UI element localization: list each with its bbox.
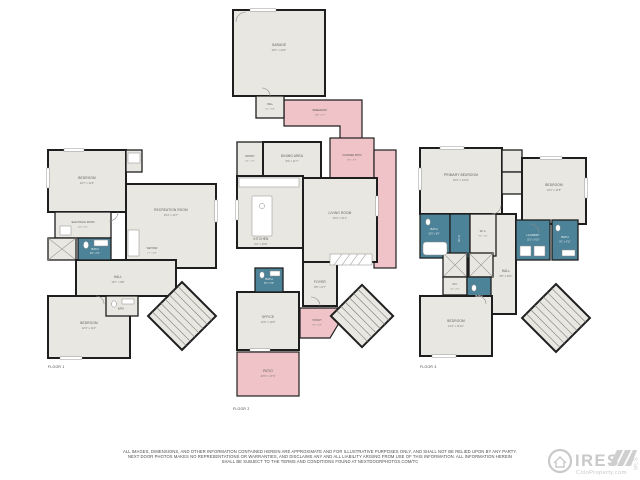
floor-3-label: FLOOR 3	[420, 365, 437, 369]
disclaimer-line-3: SHALL BE SUBJECT TO THE TERMS AND CONDIT…	[222, 459, 419, 464]
room-dims: 5'1" x 5'8"	[265, 109, 275, 111]
closet-top	[502, 172, 522, 194]
room-pantry	[237, 142, 263, 176]
room-dims: 16'8" x 5'7"	[315, 115, 326, 117]
room-dims: 8'9" x 6'7"	[314, 285, 326, 289]
room-label: OFFICE	[262, 315, 275, 319]
closet-top	[502, 150, 522, 172]
toilet-icon	[556, 225, 561, 231]
room-foyer	[303, 262, 337, 306]
room-wc	[443, 277, 467, 295]
bath-vanity	[270, 271, 280, 276]
room-label: BREEZEWAY	[313, 109, 328, 112]
room-label: BEDROOM	[78, 176, 96, 180]
house-icon	[554, 457, 566, 467]
electrical-box	[60, 226, 71, 235]
room-dims: 8'0" x 5'1"	[90, 253, 100, 255]
kitchen-counter	[239, 178, 299, 187]
wetbar-counter	[128, 230, 139, 256]
room-label: FOYER	[314, 280, 326, 284]
room-label: BATH	[91, 247, 98, 251]
room-dims: 14'2" x 11'10"	[448, 324, 464, 328]
room-dims: 11'4" x 6'1"	[78, 227, 89, 229]
stairs-floor3	[522, 284, 590, 352]
room-label: PANTRY	[245, 155, 255, 158]
room-label: BATH	[265, 277, 272, 281]
floor-1-label: FLOOR 1	[48, 365, 65, 369]
toilet-icon	[426, 219, 431, 225]
room-label: HALL	[502, 269, 511, 273]
covered-patio	[330, 138, 374, 178]
toilet-icon	[472, 285, 477, 291]
room-label: LAUNDRY	[526, 233, 539, 237]
room-label: W.I.C.	[457, 234, 461, 242]
window	[47, 168, 50, 188]
room-dims: 9'2" x 16'6"	[254, 242, 267, 246]
room-label: RECREATION ROOM	[154, 208, 188, 212]
room-bedroom-upper	[48, 150, 126, 212]
window	[64, 149, 84, 152]
room-label: PATIO	[263, 369, 273, 373]
floor-1-plan: BEDROOM 12'7" x 11'6" RECREATION ROOM 19…	[47, 149, 218, 369]
room-label: HALL	[267, 103, 274, 106]
room-label: DINING AREA	[281, 154, 304, 158]
logo-circle-icon	[549, 450, 571, 472]
room-dims: 15'7" x 9'8"	[111, 280, 124, 284]
toilet-icon	[112, 301, 117, 307]
room-dims: 5'0" x 5'6"	[264, 283, 274, 285]
window	[60, 357, 82, 360]
window	[250, 349, 270, 352]
room-label: WET BAR	[147, 247, 158, 250]
ires-logo: IRES ColoProperty.com MLS	[549, 450, 640, 476]
window	[250, 9, 276, 12]
room-dims: 20'6" x 17'0"	[261, 374, 276, 378]
window	[376, 196, 379, 216]
floor-3-plan: PRIMARY BEDROOM 15'4" x 13'11" BEDROOM 1…	[419, 147, 590, 369]
room-label: LIVING ROOM	[329, 211, 352, 215]
room-dims: 12'7" x 11'6"	[80, 181, 95, 185]
room-label: HALL	[114, 275, 123, 279]
room-dims: 9'9" x 11'7"	[285, 159, 298, 163]
room-label: W.I.C.	[480, 230, 487, 233]
floorplan-sheet: BEDROOM 12'7" x 11'6" RECREATION ROOM 19…	[0, 0, 640, 480]
room-label: BATH	[430, 227, 437, 231]
room-label: PORCH	[313, 319, 322, 322]
room-dims: 19'4" x 14'7"	[164, 213, 179, 217]
logo-mls-text: MLS	[634, 457, 640, 470]
sink-icon	[259, 203, 264, 208]
room-mud-hall	[256, 96, 284, 118]
window	[440, 147, 464, 150]
window	[432, 355, 456, 358]
patio	[237, 352, 299, 396]
room-garage	[233, 10, 325, 96]
room-dims: 12'1" x 11'5"	[547, 188, 562, 192]
toilet-icon	[83, 241, 88, 248]
room-dims: 4'1" x 4'0"	[450, 289, 460, 291]
bath-vanity	[122, 299, 134, 304]
washer-icon	[520, 246, 531, 256]
tub-icon	[423, 242, 447, 255]
room-dims: 9'0" x 5'9"	[312, 325, 322, 327]
room-label: W.C.	[452, 283, 458, 286]
room-dims: 16'4" x 21'1"	[333, 216, 348, 220]
room-label: BEDROOM	[447, 319, 465, 323]
room-label: GARAGE	[272, 43, 287, 47]
room-label: KITCHEN	[253, 237, 269, 241]
room-label: BEDROOM	[80, 321, 98, 325]
room-dims: 8'1" x 4'11"	[559, 242, 570, 244]
room-dims: 4'1" x 7'5"	[245, 161, 255, 163]
room-living	[303, 178, 377, 262]
disclaimer: ALL IMAGES, DIMENSIONS, AND OTHER INFORM…	[123, 449, 517, 464]
room-label: BATH	[118, 308, 124, 311]
room-dims: 10'1" x 6'10"	[527, 240, 540, 242]
room-label: BEDROOM	[545, 183, 563, 187]
logo-site-text: ColoProperty.com	[576, 470, 627, 476]
room-dims: 20'1" x 20'4"	[272, 48, 287, 52]
room-dims: 9'4" x 8'7"	[347, 160, 357, 162]
room-dims: 12'0" x 10'9"	[261, 320, 276, 324]
fireplace	[330, 254, 372, 265]
floor-2-label: FLOOR 2	[233, 407, 250, 411]
room-hall	[76, 260, 176, 296]
room-dims: 10'5" x 9'6"	[428, 234, 440, 236]
room-label: COVERED PATIO	[342, 154, 361, 157]
window	[540, 157, 562, 160]
kitchen-island	[252, 196, 272, 236]
window	[236, 200, 239, 220]
room-label: BATH	[561, 235, 568, 239]
room-label: PRIMARY BEDROOM	[444, 173, 478, 177]
window	[215, 200, 218, 222]
room-label: BATH	[475, 294, 482, 298]
window	[419, 168, 422, 190]
window	[585, 178, 588, 198]
floor-2-plan: GARAGE 20'1" x 20'4" HALL 5'1" x 5'8" BR…	[233, 9, 396, 411]
room-dims: 9'0" x 5'2"	[478, 236, 488, 238]
bath-vanity	[562, 250, 575, 256]
room-dims: 7'7" x 6'9"	[147, 253, 157, 255]
room-dims: 9'5" x 23'1"	[499, 274, 512, 278]
toilet-icon	[260, 272, 265, 278]
bath-vanity	[94, 240, 108, 246]
room-dims: 15'4" x 13'11"	[453, 178, 469, 182]
shower-icon	[128, 153, 140, 163]
dryer-icon	[534, 246, 545, 256]
room-label: ELECTRICAL ROOM	[72, 221, 95, 224]
stairs-floor2	[331, 285, 393, 347]
room-dims: 12'4" x 11'0"	[82, 326, 97, 330]
room-recreation	[126, 184, 216, 268]
